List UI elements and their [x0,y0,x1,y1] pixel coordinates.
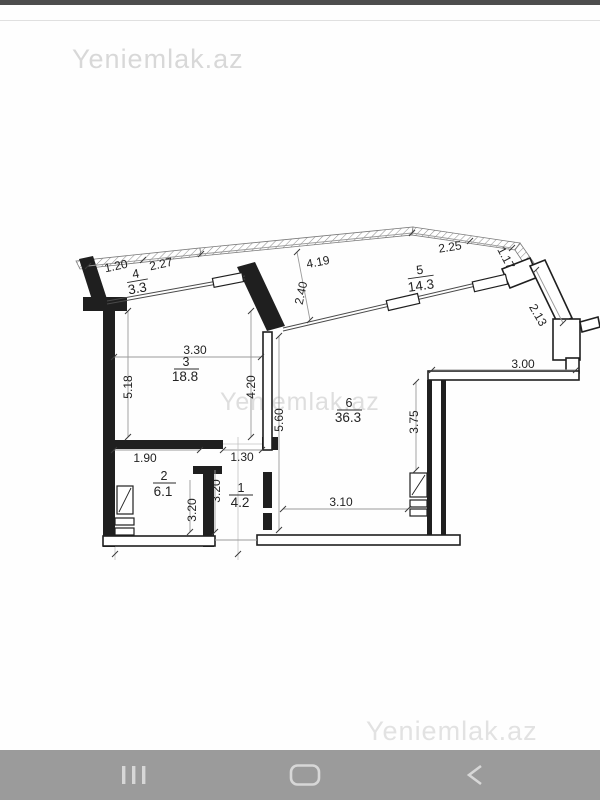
floor-plan-image[interactable]: 1.20 2.27 4.19 2.25 1.17 2.13 2.40 3.30 … [0,0,600,800]
dim-room3-right: 4.20 [244,375,258,399]
room-label-2: 2 6.1 [153,469,176,499]
recents-icon [115,763,153,787]
dim-balcony5-right-a: 2.25 [437,238,463,256]
dim-room6-right: 3.75 [407,410,421,434]
room-5-area: 14.3 [407,276,435,295]
back-icon [460,761,490,789]
dim-room6-left: 5.60 [272,408,286,432]
home-icon [286,762,324,788]
dim-hall-top: 1.30 [230,450,254,464]
navigation-bar [0,750,600,800]
balcony-exterior-wall [76,227,534,269]
room-6-area: 36.3 [335,410,361,425]
room-label-6: 6 36.3 [335,396,362,425]
dim-right-wall-slant: 2.13 [526,301,550,329]
room-label-1: 1 4.2 [229,481,253,510]
room-label-5: 5 14.3 [405,261,436,294]
bathroom-fixtures [115,486,134,535]
room-2-number: 2 [161,469,168,483]
dim-hall-side: 3.20 [209,479,223,503]
back-button[interactable] [460,761,490,789]
dim-room3-left: 5.18 [121,375,135,399]
room-label-3: 3 18.8 [172,355,199,384]
dim-nook-top: 3.00 [511,357,535,371]
dim-room6-bottom: 3.10 [329,495,353,509]
room-5-number: 5 [415,263,424,278]
room-1-number: 1 [238,481,245,495]
room-4-number: 4 [131,266,140,281]
dim-room2-top: 1.90 [133,451,157,465]
room-2-area: 6.1 [154,484,173,499]
dim-room2-side: 3.20 [185,498,199,522]
room-1-area: 4.2 [231,495,250,510]
phone-screen: Yeniemlak.az Yeniemlak.az Yeniemlak.az [0,0,600,800]
dim-balcony5-top: 4.19 [305,253,331,271]
room-labels: 4 3.3 5 14.3 3 18.8 6 36.3 2 [124,261,436,510]
home-button[interactable] [286,762,324,788]
room-4-area: 3.3 [127,279,148,297]
room-3-number: 3 [183,355,190,369]
recents-button[interactable] [115,763,153,787]
room-6-number: 6 [346,396,353,410]
dim-balcony5-depth: 2.40 [292,280,311,306]
room-3-area: 18.8 [172,369,198,384]
kitchen-fixtures [410,473,427,516]
